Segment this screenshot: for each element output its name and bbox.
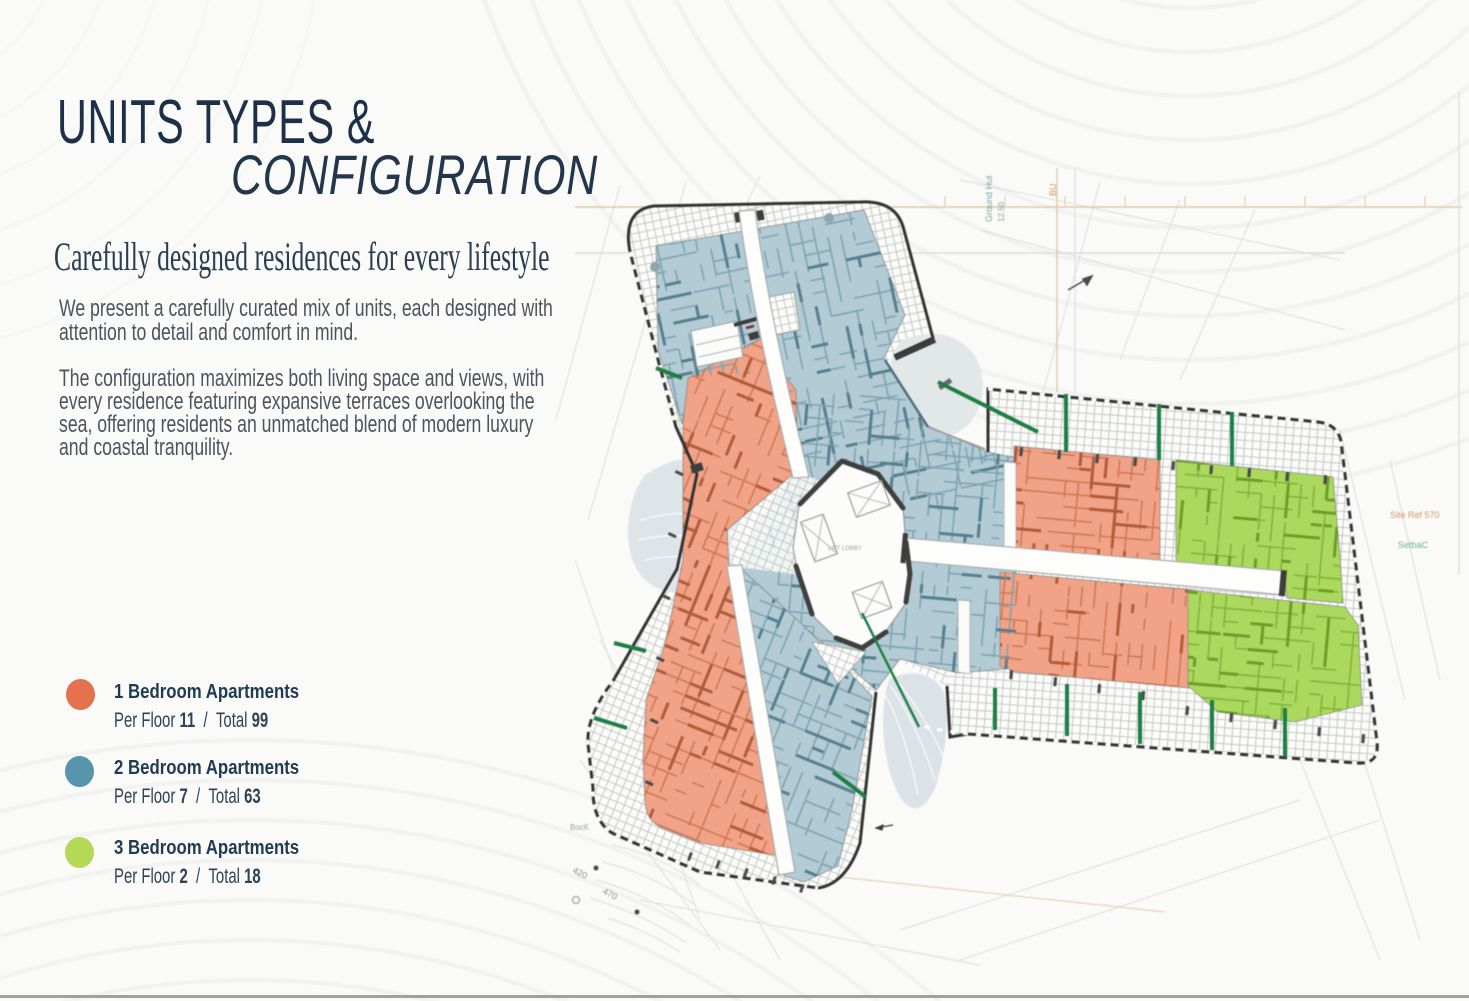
svg-text:420: 420	[571, 865, 589, 881]
svg-text:470: 470	[601, 886, 619, 902]
svg-text:BU: BU	[1048, 183, 1058, 196]
svg-text:Ground Hut: Ground Hut	[984, 175, 994, 222]
svg-text:12.50: 12.50	[997, 201, 1006, 222]
svg-text:SetbaC: SetbaC	[1398, 540, 1429, 550]
svg-text:BocK: BocK	[570, 823, 590, 832]
svg-text:LIFT LOBBY: LIFT LOBBY	[828, 546, 862, 552]
svg-text:Site Ref 570: Site Ref 570	[1390, 510, 1440, 520]
